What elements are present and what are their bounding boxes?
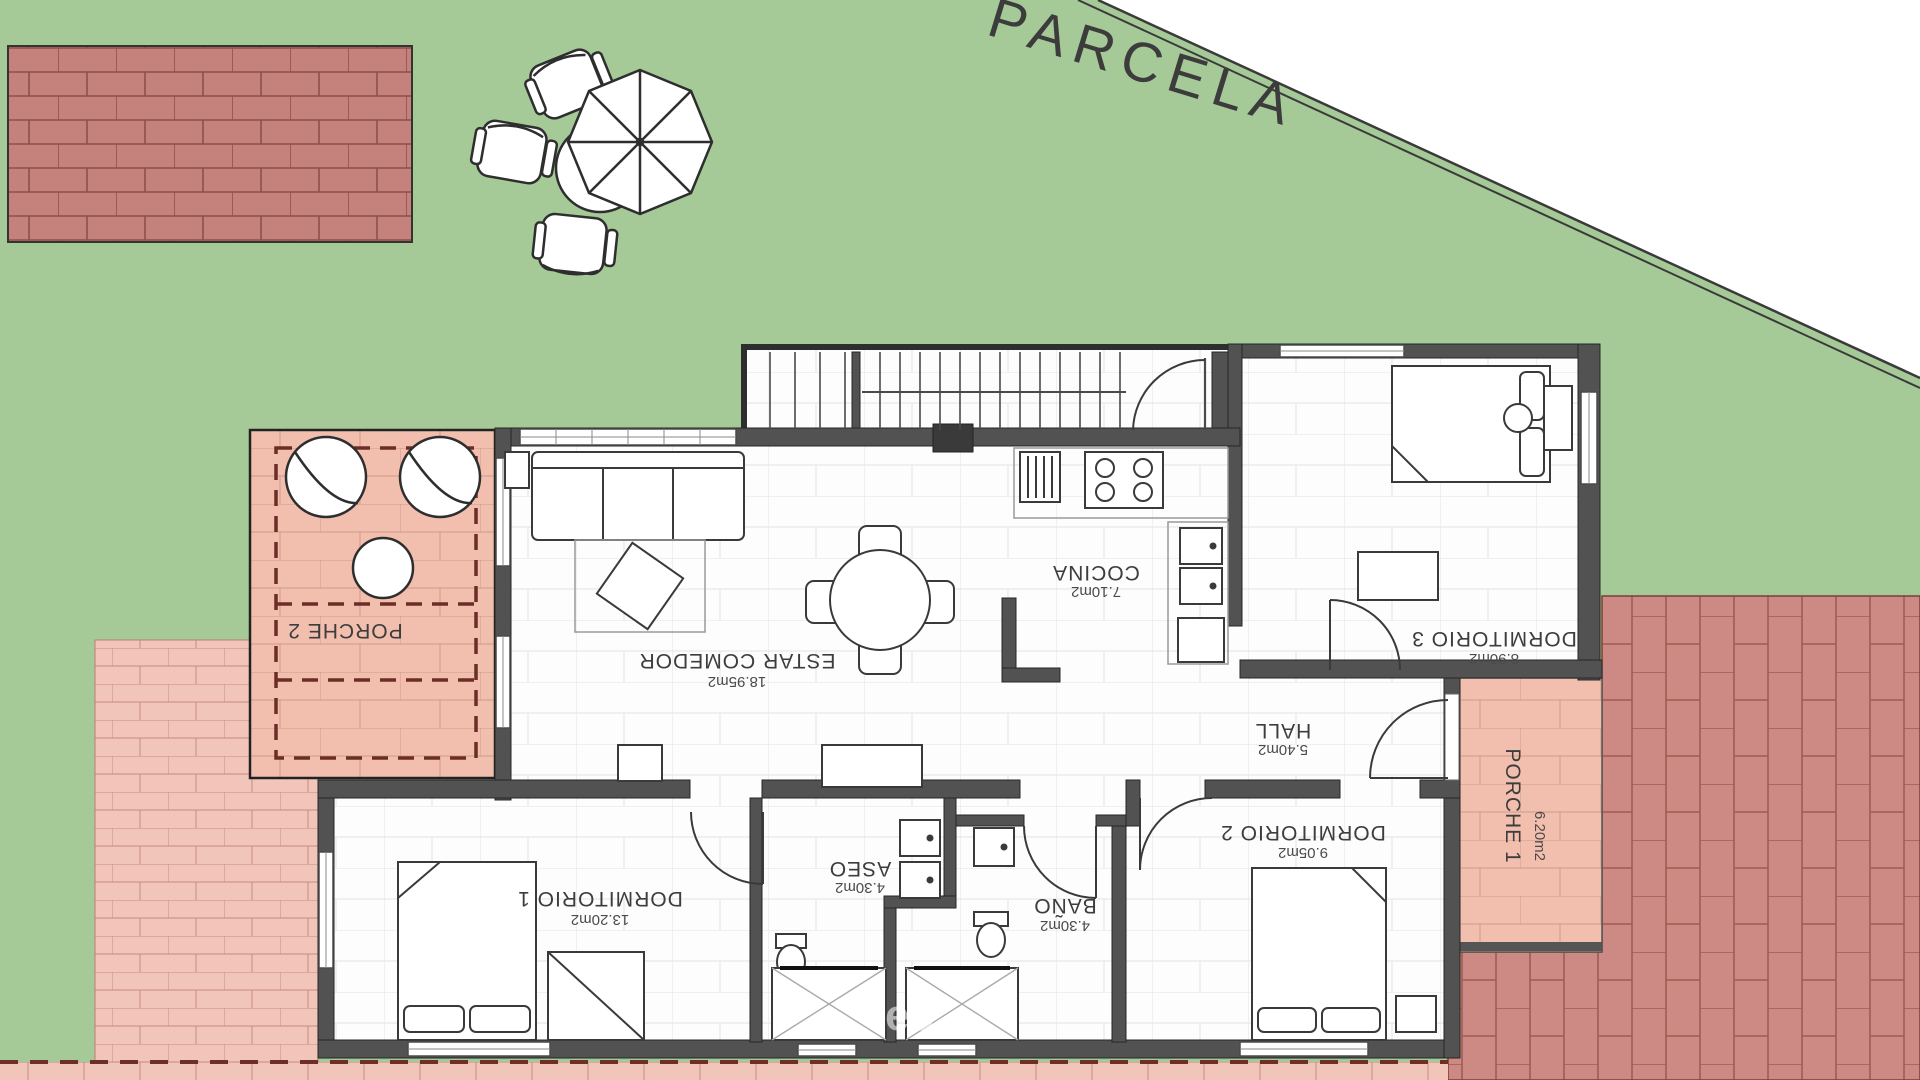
window	[520, 429, 736, 445]
window	[319, 852, 333, 968]
fridge-icon	[1178, 618, 1224, 662]
room-label-porche-1: PORCHE 1	[1501, 748, 1524, 863]
room-label-dormitorio-3: DORMITORIO 3	[1411, 627, 1577, 650]
stove-icon	[1085, 452, 1163, 508]
radiator-icon	[1020, 452, 1060, 502]
bed-icon	[1252, 868, 1386, 1040]
lounge-chair-icon	[400, 437, 480, 517]
room-label-bano: BAÑO	[1033, 894, 1097, 918]
porche-1-step	[1448, 942, 1602, 951]
brick-patio-top-left	[8, 46, 412, 242]
room-area-aseo: 4.30m2	[835, 879, 885, 896]
room-label-dormitorio-1: DORMITORIO 1	[517, 887, 683, 910]
room-label-estar-comedor: ESTAR COMEDOR	[639, 649, 836, 672]
room-area-dormitorio-1: 13.20m2	[571, 911, 629, 928]
room-area-dormitorio-2: 9.05m2	[1278, 844, 1328, 861]
shower-tray-icon	[772, 968, 886, 1040]
floor-plan-canvas: PARCELA	[0, 0, 1920, 1080]
room-label-aseo: ASEO	[829, 857, 891, 880]
room-label-porche-2: PORCHE 2	[287, 619, 402, 642]
porche-1-area	[1448, 678, 1602, 952]
door-opening	[1445, 694, 1459, 780]
porch-table-icon	[353, 538, 413, 598]
bench-icon	[1358, 552, 1438, 600]
room-label-cocina: COCINA	[1052, 561, 1140, 584]
parasol-icon	[568, 70, 712, 214]
window	[1581, 392, 1597, 484]
chair-icon	[1504, 404, 1532, 432]
side-table-icon	[505, 452, 529, 488]
window	[1240, 1042, 1368, 1056]
window	[798, 1044, 856, 1056]
window	[408, 1042, 550, 1056]
cabinet-icon	[618, 745, 662, 781]
desk-icon	[1544, 386, 1572, 450]
sofa-icon	[532, 452, 744, 540]
brick-strip-bottom	[0, 1062, 1448, 1080]
lounge-chair-icon	[286, 437, 366, 517]
room-label-hall: HALL	[1255, 719, 1312, 742]
window	[1280, 345, 1404, 357]
room-area-cocina: 7.10m2	[1071, 583, 1121, 600]
room-area-hall: 5.40m2	[1258, 741, 1308, 758]
toilet-icon	[974, 912, 1008, 957]
window	[496, 636, 510, 728]
nightstand-icon	[1396, 996, 1436, 1032]
room-area-estar-comedor: 18.95m2	[708, 673, 766, 690]
floor-plan-svg: PARCELA	[0, 0, 1920, 1080]
watermark-text: es	[885, 991, 934, 1040]
room-area-dormitorio-3: 8.90m2	[1469, 650, 1519, 667]
bed-icon	[398, 862, 536, 1040]
room-area-bano: 4.30m2	[1040, 917, 1090, 934]
sink-icon	[974, 828, 1014, 866]
sideboard-icon	[822, 745, 922, 787]
house: ESTAR COMEDOR 18.95m2 COCINA 7.10m2 HALL…	[250, 344, 1602, 1058]
room-label-dormitorio-2: DORMITORIO 2	[1220, 821, 1386, 844]
room-area-porche-1: 6.20m2	[1531, 811, 1548, 861]
window	[918, 1044, 976, 1056]
